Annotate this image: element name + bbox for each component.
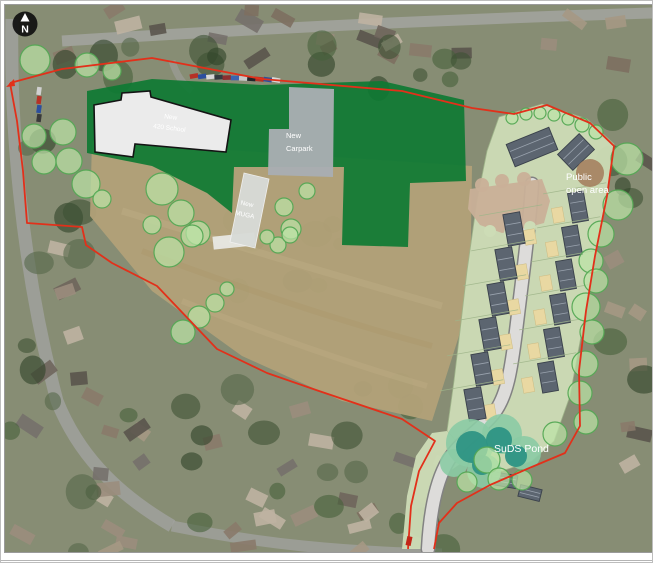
open-area-label-line1: Public	[566, 172, 592, 183]
tree-canopy	[56, 148, 82, 174]
tree-canopy	[220, 282, 234, 296]
bg-roof	[244, 5, 259, 16]
bg-tree	[63, 239, 95, 269]
bg-tree	[221, 374, 254, 405]
bg-tree	[317, 463, 338, 481]
screenshot-frame: New 420 School New Carpark New MUGA Publ…	[0, 0, 653, 563]
carpark-label-line1: New	[286, 131, 302, 140]
bg-tree	[18, 338, 36, 353]
bg-tree	[413, 68, 427, 82]
bg-tree	[331, 421, 362, 449]
tree-canopy	[584, 269, 608, 293]
plot-garden	[551, 207, 564, 224]
tree-canopy	[22, 124, 46, 148]
plot-garden	[539, 275, 552, 292]
bg-roof	[620, 421, 636, 432]
tree-canopy	[93, 190, 111, 208]
bg-tree	[53, 50, 78, 79]
bg-roof	[409, 43, 432, 58]
parked-car	[231, 76, 239, 81]
tree-canopy	[143, 216, 161, 234]
north-arrow: N	[13, 12, 38, 37]
court-bump	[495, 174, 509, 188]
court-notch	[484, 225, 496, 237]
court-bump	[475, 178, 489, 192]
tree-canopy	[146, 173, 178, 205]
tree-canopy	[20, 45, 50, 75]
bg-tree	[248, 421, 280, 446]
tree-canopy	[206, 294, 224, 312]
plot-garden	[521, 377, 534, 394]
bg-tree	[121, 38, 139, 57]
parked-car	[223, 75, 232, 80]
bg-tree	[597, 99, 628, 131]
bg-roof	[540, 38, 557, 51]
court-bump	[517, 172, 531, 186]
tree-canopy	[611, 143, 643, 175]
bg-tree	[66, 474, 99, 509]
tree-canopy	[275, 198, 293, 216]
bg-tree	[307, 30, 336, 60]
tree-canopy	[512, 470, 532, 490]
plot-garden	[533, 309, 546, 326]
bg-tree	[24, 251, 54, 274]
tree-canopy	[168, 200, 194, 226]
open-area-label-line2: open area	[566, 185, 610, 196]
tree-canopy	[572, 351, 598, 377]
tree-canopy	[299, 183, 315, 199]
parked-car	[214, 75, 223, 80]
site-plan-map: New 420 School New Carpark New MUGA Publ…	[5, 5, 652, 552]
window-bottom-border	[1, 560, 653, 561]
bg-roof	[70, 371, 88, 386]
bg-tree	[314, 495, 344, 518]
tree-canopy	[103, 62, 121, 80]
bg-tree	[451, 52, 472, 69]
tree-canopy	[32, 150, 56, 174]
parked-car	[206, 74, 215, 79]
tree-canopy	[260, 230, 274, 244]
bg-tree	[120, 408, 138, 422]
tree-canopy	[50, 119, 76, 145]
tree-canopy	[457, 472, 477, 492]
tree-canopy	[548, 109, 560, 121]
tree-canopy	[171, 320, 195, 344]
plot-garden	[545, 241, 558, 258]
bg-tree	[442, 71, 459, 87]
tree-canopy	[282, 227, 298, 243]
bg-roof	[92, 467, 109, 481]
bg-tree	[181, 452, 203, 470]
pond-label-text: SuDS Pond	[494, 443, 549, 455]
map-frame: New 420 School New Carpark New MUGA Publ…	[4, 4, 653, 553]
bg-tree	[378, 34, 401, 59]
tree-canopy	[488, 468, 510, 490]
bg-tree	[45, 392, 61, 410]
bg-tree	[171, 394, 200, 420]
carpark-label-line2: Carpark	[286, 144, 313, 153]
bg-tree	[207, 48, 226, 66]
bg-tree	[187, 512, 212, 532]
tree-canopy	[181, 225, 203, 247]
suds-pond-label: SuDS Pond	[494, 443, 549, 455]
tree-canopy	[589, 125, 603, 139]
bg-tree	[344, 461, 368, 484]
plot-garden	[527, 343, 540, 360]
north-letter: N	[21, 24, 29, 36]
tree-canopy	[154, 237, 184, 267]
bg-tree	[20, 356, 46, 385]
bg-tree	[269, 483, 285, 500]
bg-tree	[191, 425, 213, 445]
